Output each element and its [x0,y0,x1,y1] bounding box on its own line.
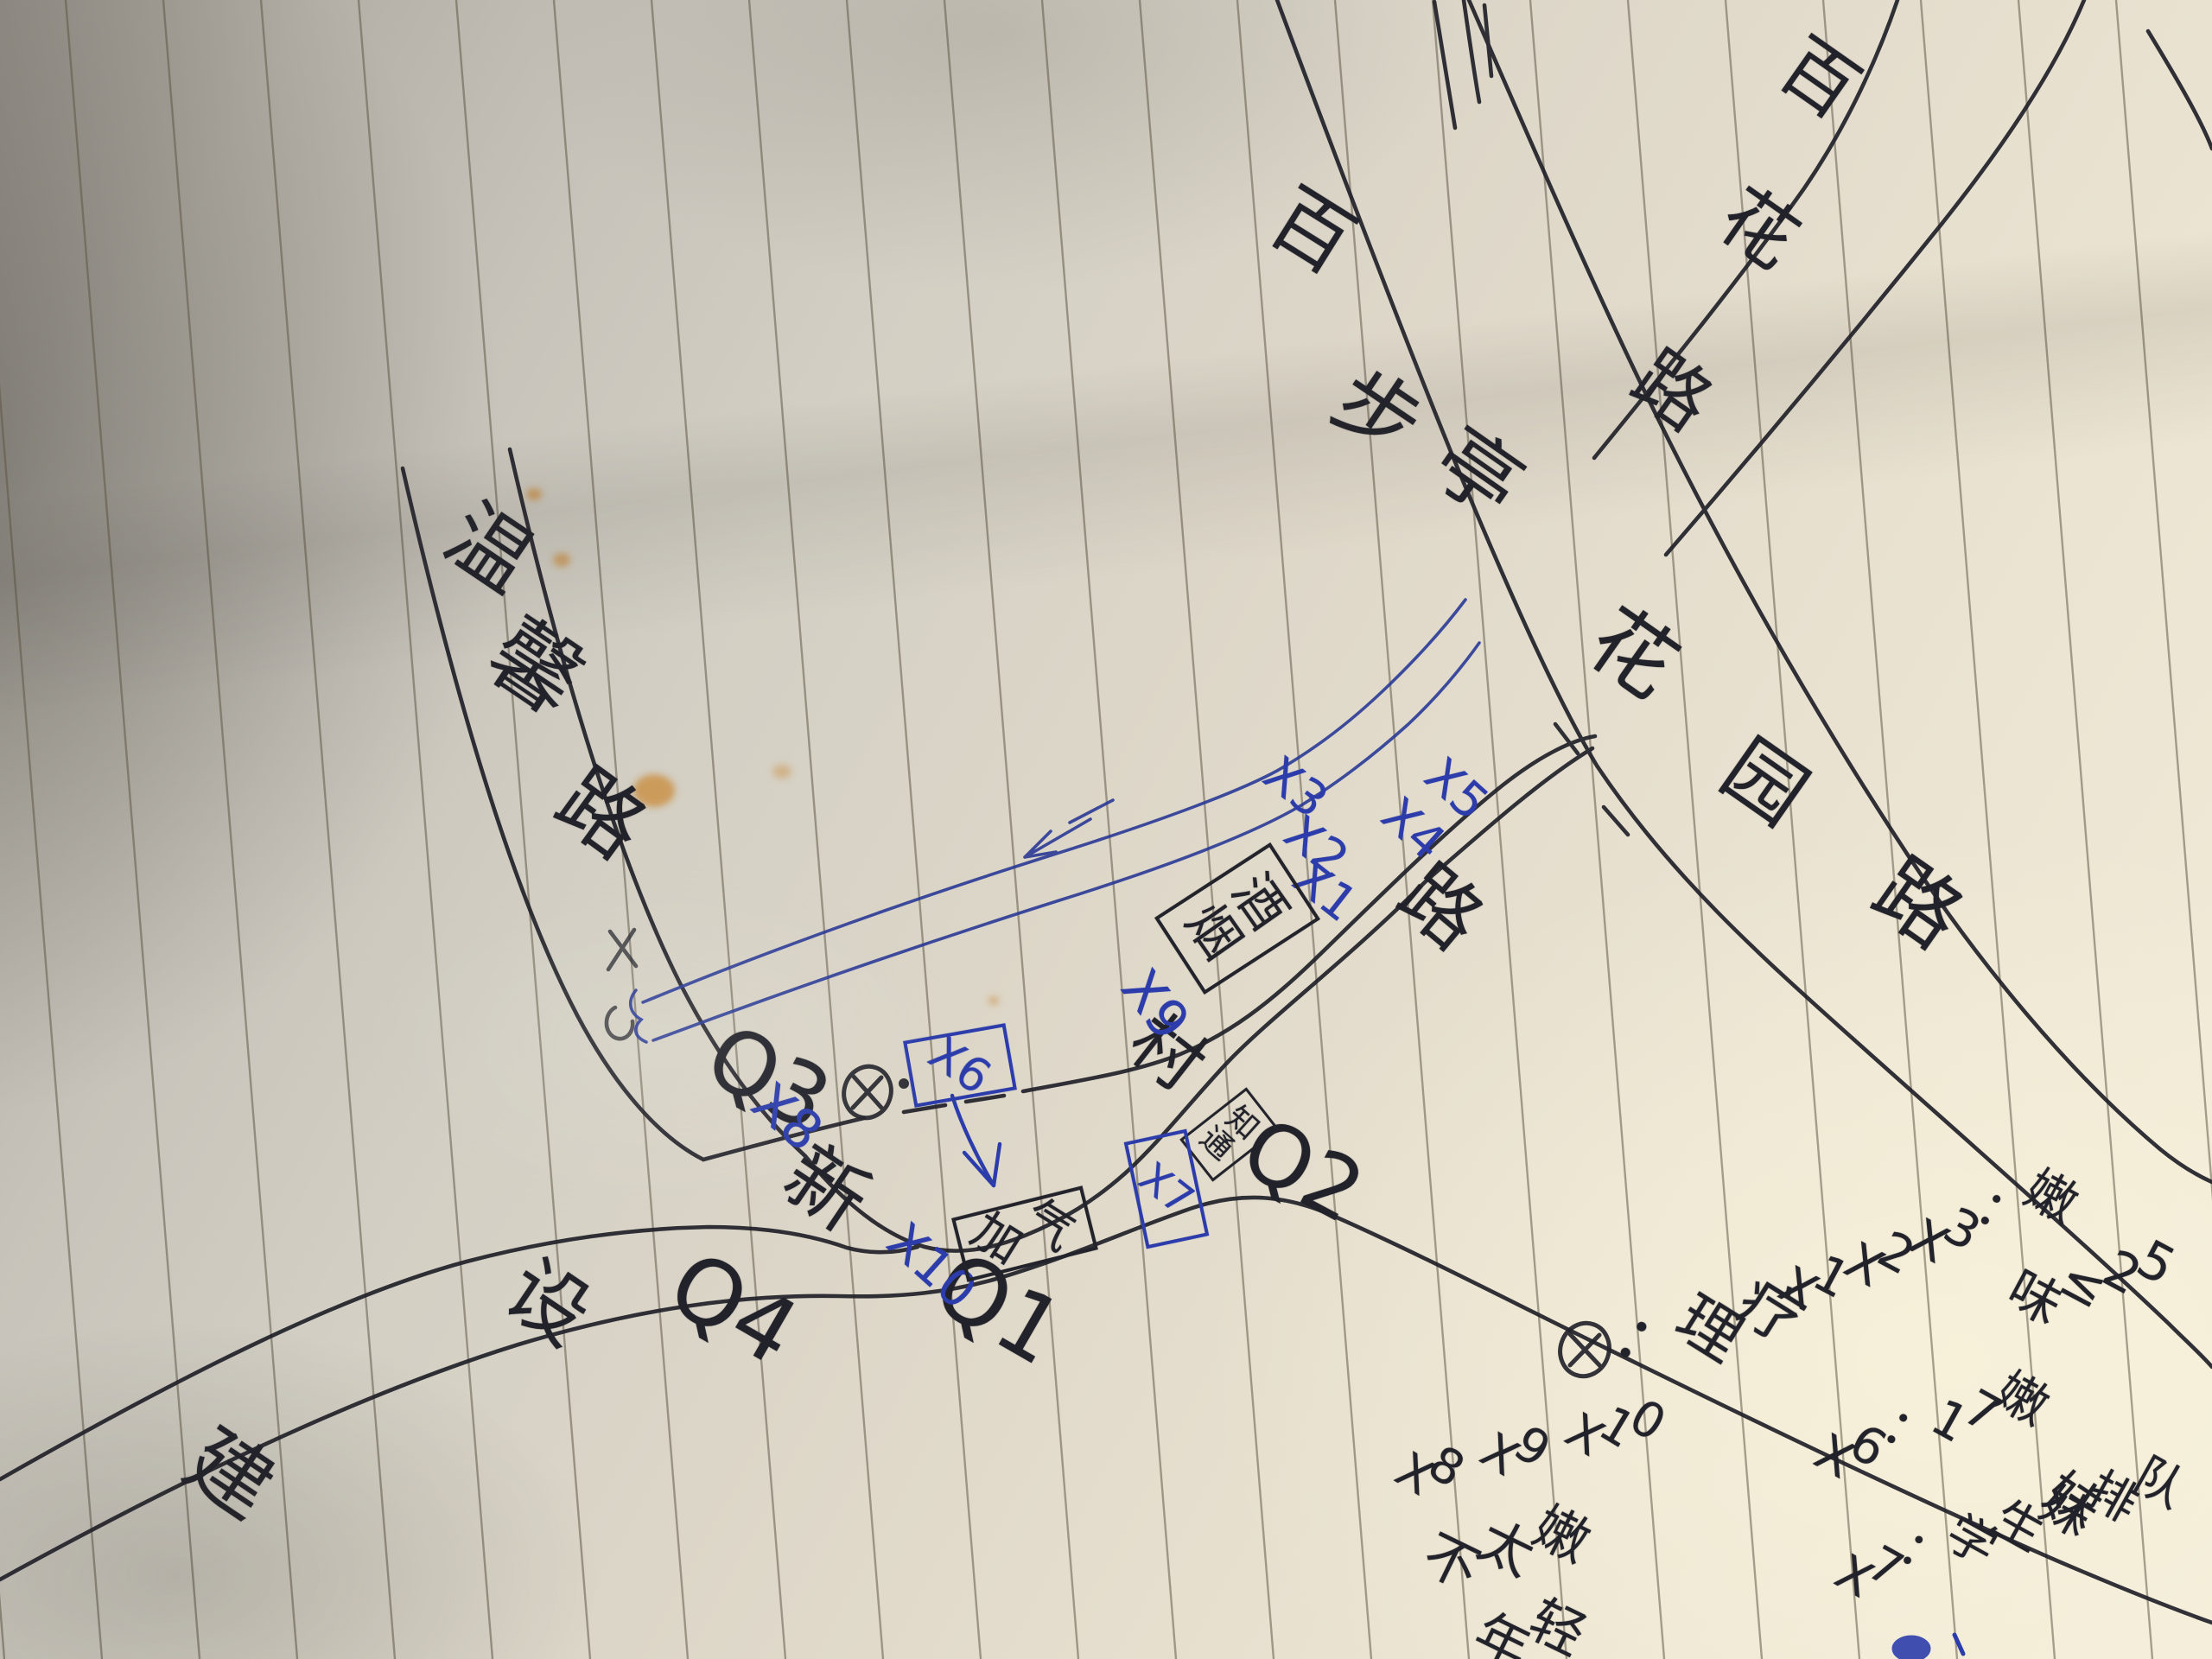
junction-tick-2 [1604,807,1628,835]
poi-x7-label: X7 [1132,1156,1201,1223]
ruled-line [359,0,493,1659]
ruled-line [749,0,883,1659]
map-therapy-icon [837,1060,898,1124]
x6-pointer-arrow [952,1096,1000,1185]
stray-x-mark [608,930,636,969]
river-upper-line [643,600,1465,1002]
map-ink-drawing [0,0,2212,1659]
ruled-line [0,0,4,1659]
road-baihua-lower-edge [1666,0,2084,555]
poi-x6-label: X6 [921,1029,998,1103]
ruled-line [261,0,395,1659]
ruled-line [66,0,200,1659]
stain-marks [526,488,999,1005]
ruled-line [652,0,785,1659]
river-start-squiggle [631,990,646,1042]
blue-bottom-mark [1892,1635,1963,1659]
road-corner-stroke [2148,31,2212,149]
ruled-line [2116,0,2212,1659]
ruled-line [944,0,1078,1659]
road-xincun-dash-1 [904,1105,945,1112]
dot-mark [901,1081,907,1087]
ruled-lines [0,0,2212,1659]
ruled-line [847,0,981,1659]
road-xincun-lower-edge [805,748,1592,1251]
ruled-line [163,0,297,1659]
ruled-line [1042,0,1176,1659]
stray-loop-mark [607,1007,632,1039]
paper-photo: 温 馨 路 新 村 路 建 设 百 步 亭 花 园 路 百 花 路 Q3 Q4 … [0,0,2212,1659]
